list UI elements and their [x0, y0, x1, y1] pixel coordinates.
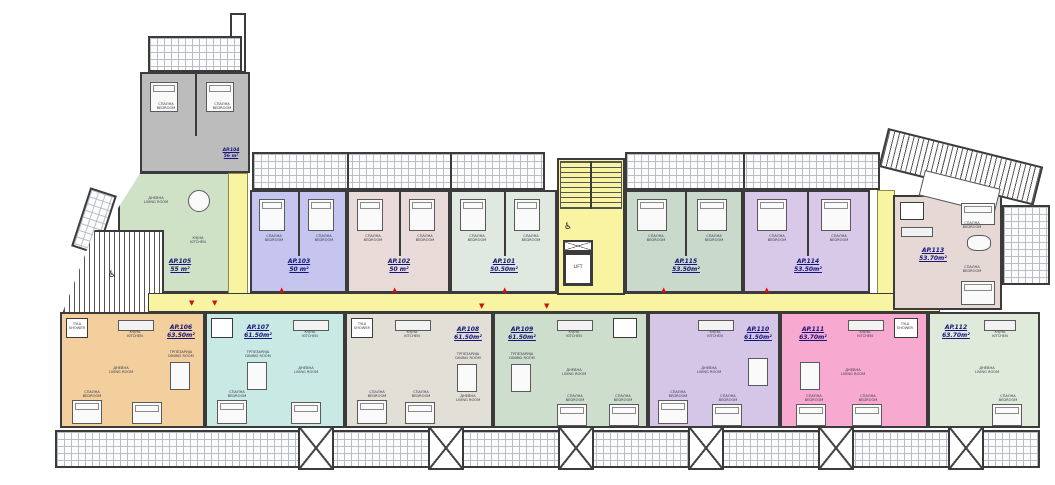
- shower-room: [613, 318, 637, 338]
- room-label-kitchen: КУЈНА KITCHEN: [980, 330, 1020, 339]
- partition-wall: [807, 192, 809, 256]
- balcony-divider: [743, 152, 745, 190]
- room-label-bedroom: СПАЛНА BEDROOM: [553, 394, 597, 403]
- room-label-bedroom: СПАЛНА BEDROOM: [403, 234, 447, 243]
- lift-shaft-top: [563, 240, 593, 252]
- bed-icon: [637, 199, 667, 231]
- room-label-living: ДНЕВНА LIVING ROOM: [98, 366, 144, 375]
- apartment-label: AP.10456 m²: [212, 148, 250, 159]
- bed-icon: [557, 404, 587, 426]
- balcony-upper-left: [252, 152, 545, 190]
- dining-table-icon: [511, 364, 531, 392]
- apartment-ap-106[interactable]: ТУШ SHOWER КУЈНА KITCHEN AP.10663.50m² Т…: [60, 312, 205, 428]
- floor-plan: СПАЛНА BEDROOM СПАЛНА BEDROOM AP.10456 m…: [0, 0, 1055, 485]
- room-label-bedroom: СПАЛНА BEDROOM: [706, 394, 750, 403]
- door-marker: ▼: [189, 300, 194, 307]
- apartment-label: AP.10663.50m²: [160, 324, 202, 339]
- bed-icon: [514, 199, 540, 231]
- apartment-label: AP.10350 m²: [280, 258, 318, 273]
- stair-rail: [590, 161, 592, 209]
- room-label-bedroom: СПАЛНА BEDROOM: [656, 390, 700, 399]
- balcony-bottom: [55, 430, 1040, 468]
- room-label-shower: ТУШ SHOWER: [64, 322, 90, 331]
- room-label-bedroom: СПАЛНА BEDROOM: [947, 221, 997, 230]
- room-label-bedroom: СПАЛНА BEDROOM: [986, 394, 1030, 403]
- room-label-kitchen: КУЈНА KITCHEN: [844, 330, 886, 339]
- dining-table-icon: [188, 190, 210, 212]
- apartment-ap-111[interactable]: AP.11163.70m² КУЈНА KITCHEN ТУШ SHOWER Д…: [780, 312, 928, 428]
- bed-icon: [821, 199, 851, 231]
- balcony-divider-x: [558, 426, 594, 470]
- room-label-bedroom: СПАЛНА BEDROOM: [144, 102, 188, 111]
- shower-room: [211, 318, 233, 338]
- room-label-kitchen: КУЈНА KITCHEN: [178, 236, 218, 245]
- bed-icon: [609, 404, 639, 426]
- room-label-bedroom: СПАЛНА BEDROOM: [508, 234, 554, 243]
- room-label-bedroom: СПАЛНА BEDROOM: [302, 234, 346, 243]
- apartment-label: AP.11061.50m²: [738, 326, 778, 341]
- apartment-ap-110[interactable]: КУЈНА KITCHEN AP.11061.50m² ДНЕВНА LIVIN…: [648, 312, 780, 428]
- room-label-living: ДНЕВНА LIVING ROOM: [134, 196, 178, 205]
- bed-icon: [409, 199, 435, 231]
- bed-icon: [405, 402, 435, 424]
- room-label-bedroom: СПАЛНА BEDROOM: [355, 390, 399, 399]
- room-label-bedroom: СПАЛНА BEDROOM: [813, 234, 865, 243]
- bed-icon: [308, 199, 334, 231]
- bed-icon: [796, 404, 826, 426]
- dining-table-icon: [800, 362, 820, 390]
- bed-icon: [852, 404, 882, 426]
- wheelchair-icon: ♿: [564, 222, 572, 232]
- room-label-dining: ТРПЕЗАРИЈА DINING ROOM: [158, 350, 204, 359]
- bed-icon: [72, 400, 102, 424]
- room-label-living: ДНЕВНА LIVING ROOM: [445, 394, 491, 403]
- apartment-label: AP.10761.50m²: [237, 324, 279, 339]
- apartment-label: AP.10961.50m²: [501, 326, 543, 341]
- balcony-upper-right: [625, 152, 880, 190]
- room-label-shower: ТУШ SHOWER: [890, 322, 920, 331]
- balcony-divider-x: [948, 426, 984, 470]
- apartment-ap-109[interactable]: AP.10961.50m² КУЈНА KITCHEN ТРПЕЗАРИЈА D…: [493, 312, 648, 428]
- partition-wall: [298, 192, 300, 256]
- room-label-bedroom: СПАЛНА BEDROOM: [601, 394, 645, 403]
- dining-table-icon: [748, 358, 768, 386]
- door-marker: ▲: [661, 287, 666, 294]
- bed-icon: [217, 400, 247, 424]
- room-label-bedroom: СПАЛНА BEDROOM: [751, 234, 803, 243]
- room-label-bedroom: СПАЛНА BEDROOM: [70, 390, 114, 399]
- room-label-bedroom: СПАЛНА BEDROOM: [792, 394, 836, 403]
- room-label-dining: ТРПЕЗАРИЈА DINING ROOM: [445, 352, 491, 361]
- bed-icon: [357, 400, 387, 424]
- apartment-ap-104[interactable]: СПАЛНА BEDROOM СПАЛНА BEDROOM AP.10456 m…: [140, 72, 250, 173]
- bed-icon: [132, 402, 162, 424]
- apartment-ap-115[interactable]: СПАЛНА BEDROOM СПАЛНА BEDROOM AP.11553.5…: [625, 190, 743, 293]
- apartment-ap-107[interactable]: AP.10761.50m² КУЈНА KITCHEN ТРПЕЗАРИЈА D…: [205, 312, 345, 428]
- apartment-ap-113[interactable]: СПАЛНА BEDROOM СПАЛНА BEDROOM AP.11353.7…: [893, 195, 1002, 310]
- room-label-dining: ТРПЕЗАРИЈА DINING ROOM: [235, 350, 281, 359]
- balcony-top-left: [148, 36, 242, 72]
- room-label-bedroom: СПАЛНА BEDROOM: [689, 234, 739, 243]
- apartment-label: AP.10861.50m²: [447, 326, 489, 341]
- balcony-divider: [450, 152, 452, 190]
- door-marker: ▼: [212, 300, 217, 307]
- apartment-label: AP.10150.50m²: [485, 258, 523, 273]
- room-label-living: ДНЕВНА LIVING ROOM: [964, 366, 1010, 375]
- balcony-divider: [347, 152, 349, 190]
- bed-icon: [460, 199, 486, 231]
- apartment-label: AP.11453.50m²: [788, 258, 828, 273]
- dining-table-icon: [457, 364, 477, 392]
- dining-table-icon: [170, 362, 190, 390]
- door-marker: ▲: [279, 287, 284, 294]
- door-marker: ▼: [544, 303, 549, 310]
- room-label-kitchen: КУЈНА KITCHEN: [114, 330, 156, 339]
- bed-icon: [291, 402, 321, 424]
- bed-icon: [658, 400, 688, 424]
- bed-icon: [357, 199, 383, 231]
- apartment-ap-114[interactable]: СПАЛНА BEDROOM СПАЛНА BEDROOM AP.11453.5…: [743, 190, 870, 293]
- apartment-label: AP.11353.70m²: [913, 247, 953, 262]
- door-marker: ▼: [479, 303, 484, 310]
- room-label-bedroom: СПАЛНА BEDROOM: [631, 234, 681, 243]
- room-label-bedroom: СПАЛНА BEDROOM: [399, 390, 443, 399]
- apartment-label: AP.11163.70m²: [792, 326, 834, 341]
- apartment-ap-101[interactable]: СПАЛНА BEDROOM СПАЛНА BEDROOM AP.10150.5…: [450, 190, 557, 293]
- room-label-bedroom: СПАЛНА BEDROOM: [947, 265, 997, 274]
- balcony-divider-x: [428, 426, 464, 470]
- balcony-divider-x: [298, 426, 334, 470]
- kitchen-counter-icon: [901, 227, 933, 237]
- partition-wall: [399, 192, 401, 256]
- lift-label: LIFT: [563, 265, 593, 270]
- door-marker: ▲: [502, 287, 507, 294]
- balcony-right: [1002, 205, 1050, 285]
- room-label-living: ДНЕВНА LIVING ROOM: [551, 368, 597, 377]
- room-label-bedroom: СПАЛНА BEDROOM: [351, 234, 395, 243]
- dining-table-icon: [247, 362, 267, 390]
- bathroom: [900, 202, 924, 220]
- apartment-ap-102[interactable]: СПАЛНА BEDROOM СПАЛНА BEDROOM AP.10250 m…: [347, 190, 450, 293]
- room-label-shower: ТУШ SHOWER: [349, 322, 375, 331]
- room-label-bedroom: СПАЛНА BEDROOM: [200, 102, 244, 111]
- door-marker: ▲: [764, 287, 769, 294]
- apartment-label: AP.11263.70m²: [936, 324, 976, 339]
- room-label-bedroom: СПАЛНА BEDROOM: [215, 390, 259, 399]
- bed-icon: [961, 281, 995, 305]
- bed-icon: [992, 404, 1022, 426]
- apartment-label: AP.10555 m²: [162, 258, 198, 273]
- apartment-ap-112[interactable]: AP.11263.70m² КУЈНА KITCHEN ДНЕВНА LIVIN…: [928, 312, 1040, 428]
- dining-table-icon: [967, 235, 991, 251]
- room-label-living: ДНЕВНА LIVING ROOM: [686, 366, 732, 375]
- room-label-kitchen: КУЈНА KITCHEN: [694, 330, 736, 339]
- door-marker: ▲: [392, 287, 397, 294]
- bed-icon: [259, 199, 285, 231]
- bed-icon: [757, 199, 787, 231]
- room-label-kitchen: КУЈНА KITCHEN: [553, 330, 595, 339]
- wheelchair-icon: ♿: [108, 270, 116, 280]
- corridor-vertical-left: [228, 173, 248, 295]
- room-label-kitchen: КУЈНА KITCHEN: [391, 330, 433, 339]
- room-label-kitchen: КУЈНА KITCHEN: [289, 330, 331, 339]
- apartment-label: AP.10250 m²: [380, 258, 418, 273]
- room-label-dining: ТРПЕЗАРИЈА DINING ROOM: [499, 352, 545, 361]
- apartment-label: AP.11553.50m²: [666, 258, 706, 273]
- room-label-bedroom: СПАЛНА BEDROOM: [846, 394, 890, 403]
- partition-wall: [504, 192, 506, 256]
- balcony-divider-x: [818, 426, 854, 470]
- balcony-divider-x: [688, 426, 724, 470]
- bed-icon: [712, 404, 742, 426]
- partition-wall: [685, 192, 687, 256]
- apartment-ap-103[interactable]: СПАЛНА BEDROOM СПАЛНА BEDROOM AP.10350 m…: [250, 190, 347, 293]
- room-label-bedroom: СПАЛНА BEDROOM: [252, 234, 296, 243]
- bed-icon: [697, 199, 727, 231]
- room-label-living: ДНЕВНА LIVING ROOM: [830, 368, 876, 377]
- room-label-bedroom: СПАЛНА BEDROOM: [454, 234, 500, 243]
- partition-wall: [195, 74, 197, 136]
- room-label-living: ДНЕВНА LIVING ROOM: [283, 366, 329, 375]
- apartment-ap-108[interactable]: ТУШ SHOWER КУЈНА KITCHEN AP.10861.50m² Т…: [345, 312, 493, 428]
